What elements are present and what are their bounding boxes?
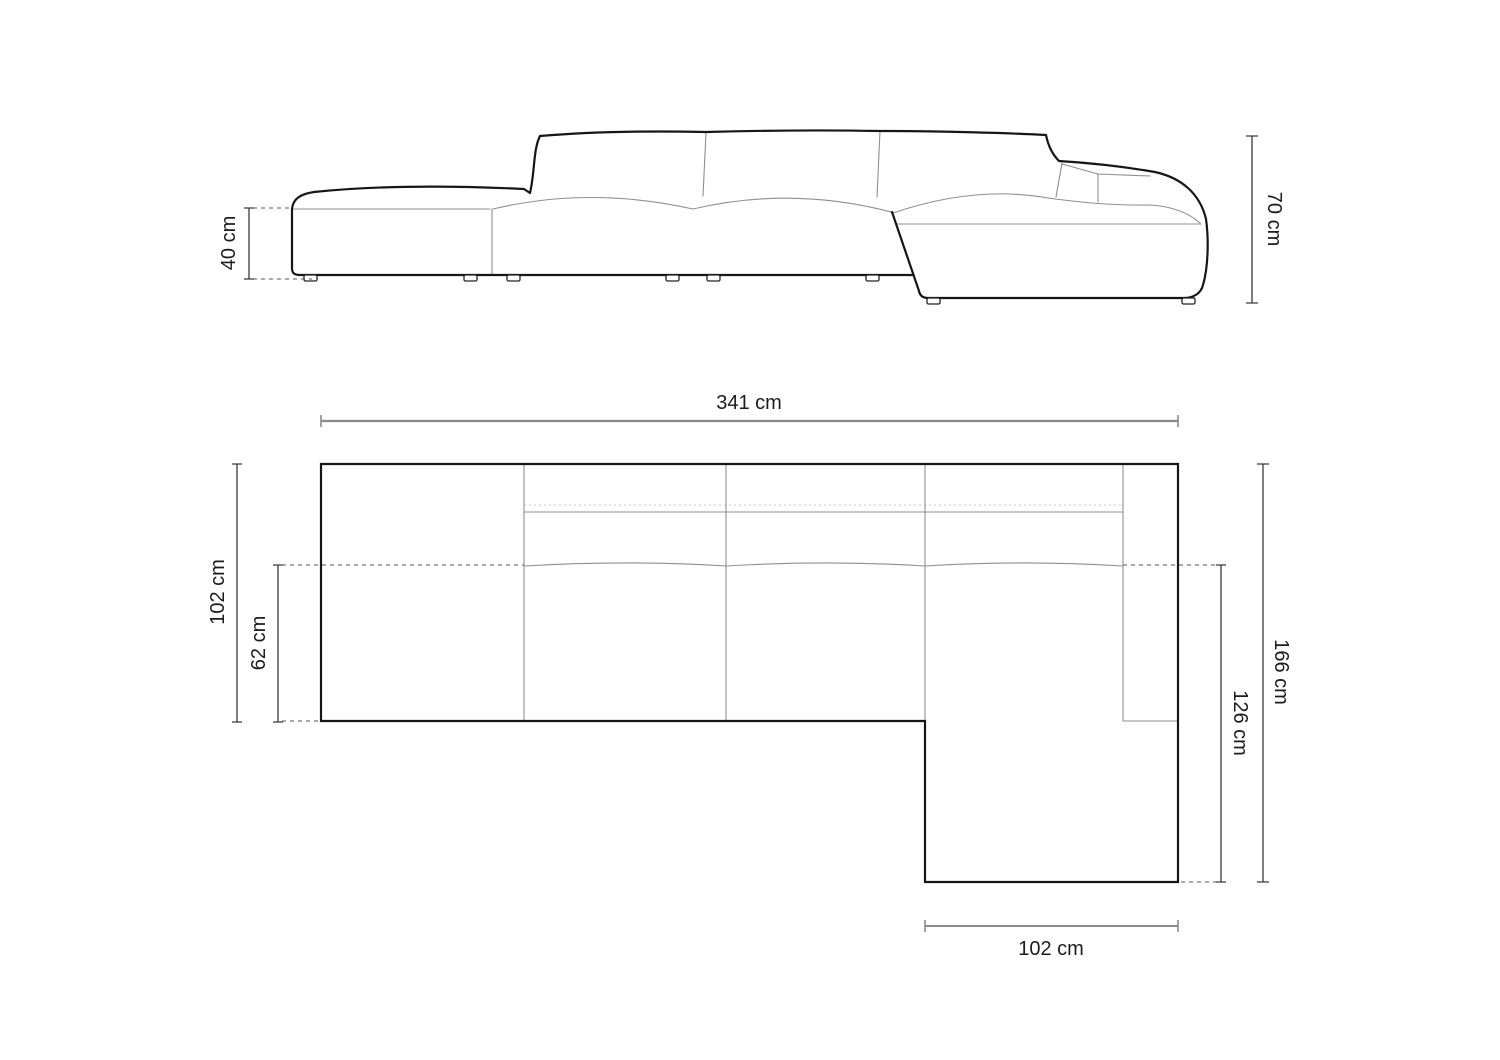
sofa-foot	[707, 275, 720, 281]
sofa-foot	[507, 275, 520, 281]
dimension-right-depth-166cm: 166 cm	[1257, 464, 1292, 882]
dimension-line	[1257, 464, 1269, 882]
dimension-line	[244, 208, 254, 279]
dimension-total-width-341cm: 341 cm	[321, 392, 1178, 427]
dimension-total-height-70cm: 70 cm	[1246, 136, 1285, 303]
dimension-chaise-width-102cm: 102 cm	[925, 920, 1178, 960]
dimension-seat-height-40cm: 40 cm	[218, 208, 312, 279]
seat-height-label: 40 cm	[218, 216, 240, 270]
sofa-foot	[927, 298, 940, 304]
top-view-extension-dashed-lines	[282, 565, 1218, 882]
dimension-line	[1216, 565, 1226, 882]
dimension-line	[232, 464, 242, 722]
sofa-foot	[464, 275, 477, 281]
right-depth-label: 166 cm	[1270, 639, 1292, 705]
dimension-line	[273, 565, 283, 722]
total-depth-label: 102 cm	[207, 559, 229, 625]
front-view-seams	[293, 131, 1201, 274]
sofa-foot	[304, 275, 317, 281]
total-width-label: 341 cm	[716, 392, 782, 414]
sofa-dimension-diagram: 40 cm 70 cm 341 cm 102 cm	[0, 0, 1500, 1060]
chaise-width-label: 102 cm	[1018, 938, 1084, 960]
dimension-chaise-depth-126cm: 126 cm	[1216, 565, 1251, 882]
sofa-dimension-diagram-page: 40 cm 70 cm 341 cm 102 cm	[0, 0, 1500, 1060]
sofa-foot	[866, 275, 879, 281]
chaise-depth-label: 126 cm	[1229, 690, 1251, 756]
sofa-foot	[666, 275, 679, 281]
front-view-outline	[292, 130, 1208, 298]
top-view-seams	[524, 464, 1178, 721]
top-view-outline	[321, 464, 1178, 882]
extension-dashed-line	[253, 208, 312, 279]
seat-depth-label: 62 cm	[248, 616, 270, 670]
front-view-feet	[304, 275, 1195, 304]
top-view: 341 cm 102 cm 62 cm 166 cm 126 cm 102 cm	[207, 392, 1292, 960]
sofa-foot	[1182, 298, 1195, 304]
dimension-total-depth-102cm: 102 cm	[207, 464, 242, 722]
dimension-seat-depth-62cm: 62 cm	[248, 565, 283, 722]
dimension-line	[1246, 136, 1258, 303]
front-view: 40 cm 70 cm	[218, 130, 1285, 304]
total-height-label: 70 cm	[1263, 192, 1285, 246]
